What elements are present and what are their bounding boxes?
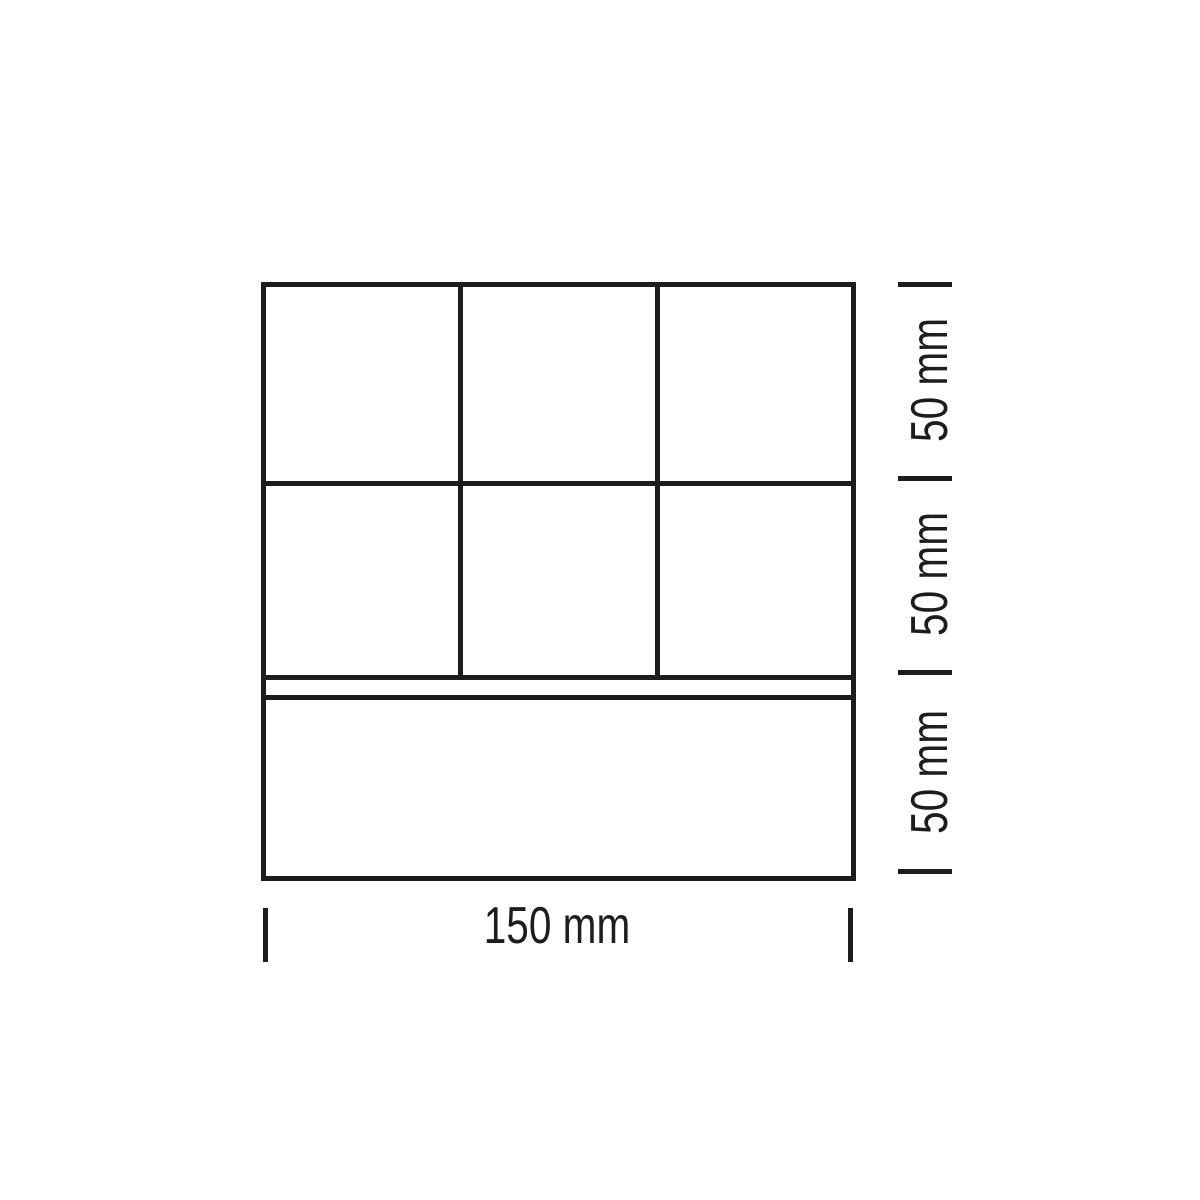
panel-outline xyxy=(261,282,856,881)
bottom-dim-tick-left xyxy=(263,908,268,962)
right-dim-tick-3 xyxy=(898,670,952,675)
width-dim-label: 150 mm xyxy=(484,900,631,952)
row-divider-line xyxy=(264,481,853,486)
right-dim-tick-1 xyxy=(898,282,952,287)
height-dim-label-middle: 50 mm xyxy=(904,512,956,636)
drawing-canvas: 50 mm 50 mm 50 mm 150 mm xyxy=(0,0,1200,1200)
right-dim-tick-2 xyxy=(898,476,952,481)
height-dim-label-top: 50 mm xyxy=(904,318,956,442)
right-dim-tick-4 xyxy=(898,869,952,874)
height-dim-label-bottom: 50 mm xyxy=(904,710,956,834)
rail-strip-bottom-line xyxy=(264,695,853,700)
rail-strip-top-line xyxy=(264,675,853,680)
bottom-dim-tick-right xyxy=(848,908,853,962)
